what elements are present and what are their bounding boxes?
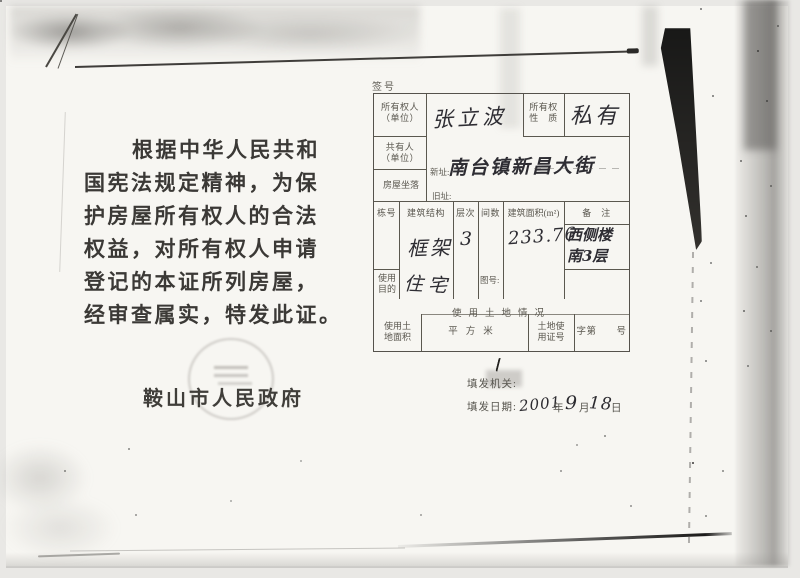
table-line	[523, 136, 629, 137]
header-rooms: 间数	[478, 208, 503, 219]
header-area: 建筑面积(m²)	[503, 208, 564, 219]
new-address-value: 南台镇新昌大街	[448, 151, 595, 181]
land-area-label-line: 使用土	[374, 321, 421, 332]
structure-value: 框架	[407, 231, 454, 262]
nature-label-line: 性 质	[523, 113, 564, 124]
issue-date: 填发日期: 2001 年 9 月 18 日	[467, 399, 517, 414]
land-cert-label: 土地使 用证号	[528, 321, 574, 343]
map-number-label: 图号:	[480, 274, 499, 286]
location-label: 房屋坐落	[376, 180, 426, 191]
table-line	[374, 136, 426, 137]
remarks-line: 南3层	[567, 245, 612, 266]
issue-date-month-value: 9	[565, 392, 578, 414]
declaration-line: 根据中华人民共和	[84, 134, 384, 167]
header-floors: 层次	[453, 208, 478, 219]
issue-agency-label: 填发机关:	[467, 376, 517, 391]
co-owner-label-line: （单位）	[374, 153, 426, 164]
issuer-name: 鞍山市人民政府	[143, 382, 304, 411]
purpose-label-line: 使用	[375, 273, 399, 284]
table-line	[426, 94, 427, 201]
ownership-nature-value: 私有	[570, 98, 620, 130]
nature-label-line: 所有权	[523, 102, 564, 113]
issue-date-label: 填发日期:	[467, 402, 517, 413]
land-cert-zi-label: 字第 号	[574, 327, 629, 338]
co-owner-label-line: 共有人	[374, 142, 426, 153]
declaration-line: 登记的本证所列房屋，	[84, 266, 384, 299]
land-use-section-title: 使用土地情况	[374, 305, 629, 319]
purpose-label: 使用 目的	[375, 273, 399, 295]
serial-number-label: 签号	[372, 78, 396, 93]
header-building-no: 栋号	[374, 208, 399, 219]
owner-label-line: 所有权人	[374, 102, 426, 113]
issue-date-day-unit: 日	[611, 400, 623, 415]
land-area-label-line: 地面积	[374, 332, 421, 343]
owner-label-line: （单位）	[374, 113, 426, 124]
declaration-line: 国宪法规定精神，为保	[84, 167, 384, 200]
header-structure: 建筑结构	[399, 208, 453, 219]
co-owner-label: 共有人 （单位）	[374, 142, 426, 164]
remarks-line: 西侧楼	[567, 224, 612, 245]
declaration-text: 根据中华人民共和 国宪法规定精神，为保 护房屋所有权人的合法 权益，对所有权人申…	[84, 134, 384, 332]
floors-value: 3	[460, 228, 472, 250]
land-area-unit: 平方米	[421, 327, 528, 338]
scan-artifact-toner-specks	[0, 0, 2, 2]
land-area-label: 使用土 地面积	[374, 321, 421, 343]
table-line	[374, 269, 399, 270]
issue-date-day-value: 18	[588, 393, 613, 415]
land-cert-label-line: 用证号	[528, 332, 574, 343]
owner-name-value: 张立波	[431, 100, 507, 134]
registration-form-table: 所有权人 （单位） 张立波 所有权 性 质 私有 共有人 （单位） 房屋坐落 新…	[373, 93, 630, 352]
certificate-scan: 根据中华人民共和 国宪法规定精神，为保 护房屋所有权人的合法 权益，对所有权人申…	[0, 0, 800, 578]
purpose-value: 住宅	[403, 269, 452, 298]
declaration-line: 护房屋所有权人的合法	[84, 200, 384, 233]
declaration-line: 经审查属实，特发此证。	[84, 299, 384, 332]
remarks-value: 西侧楼 南3层	[567, 224, 612, 266]
old-address-label: 旧址:	[432, 190, 451, 202]
issue-date-year-unit: 年	[553, 400, 565, 415]
table-line	[564, 269, 629, 270]
table-line	[564, 94, 565, 136]
declaration-line: 权益，对所有权人申请	[84, 233, 384, 266]
owner-label: 所有权人 （单位）	[374, 102, 426, 124]
scan-artifact-dashes	[534, 168, 624, 169]
table-line	[374, 169, 426, 170]
table-line	[374, 201, 629, 202]
header-remarks: 备 注	[564, 208, 629, 219]
new-address-label: 新址:	[430, 166, 449, 178]
ownership-nature-label: 所有权 性 质	[523, 102, 564, 124]
purpose-label-line: 目的	[375, 284, 399, 295]
land-cert-label-line: 土地使	[528, 321, 574, 332]
